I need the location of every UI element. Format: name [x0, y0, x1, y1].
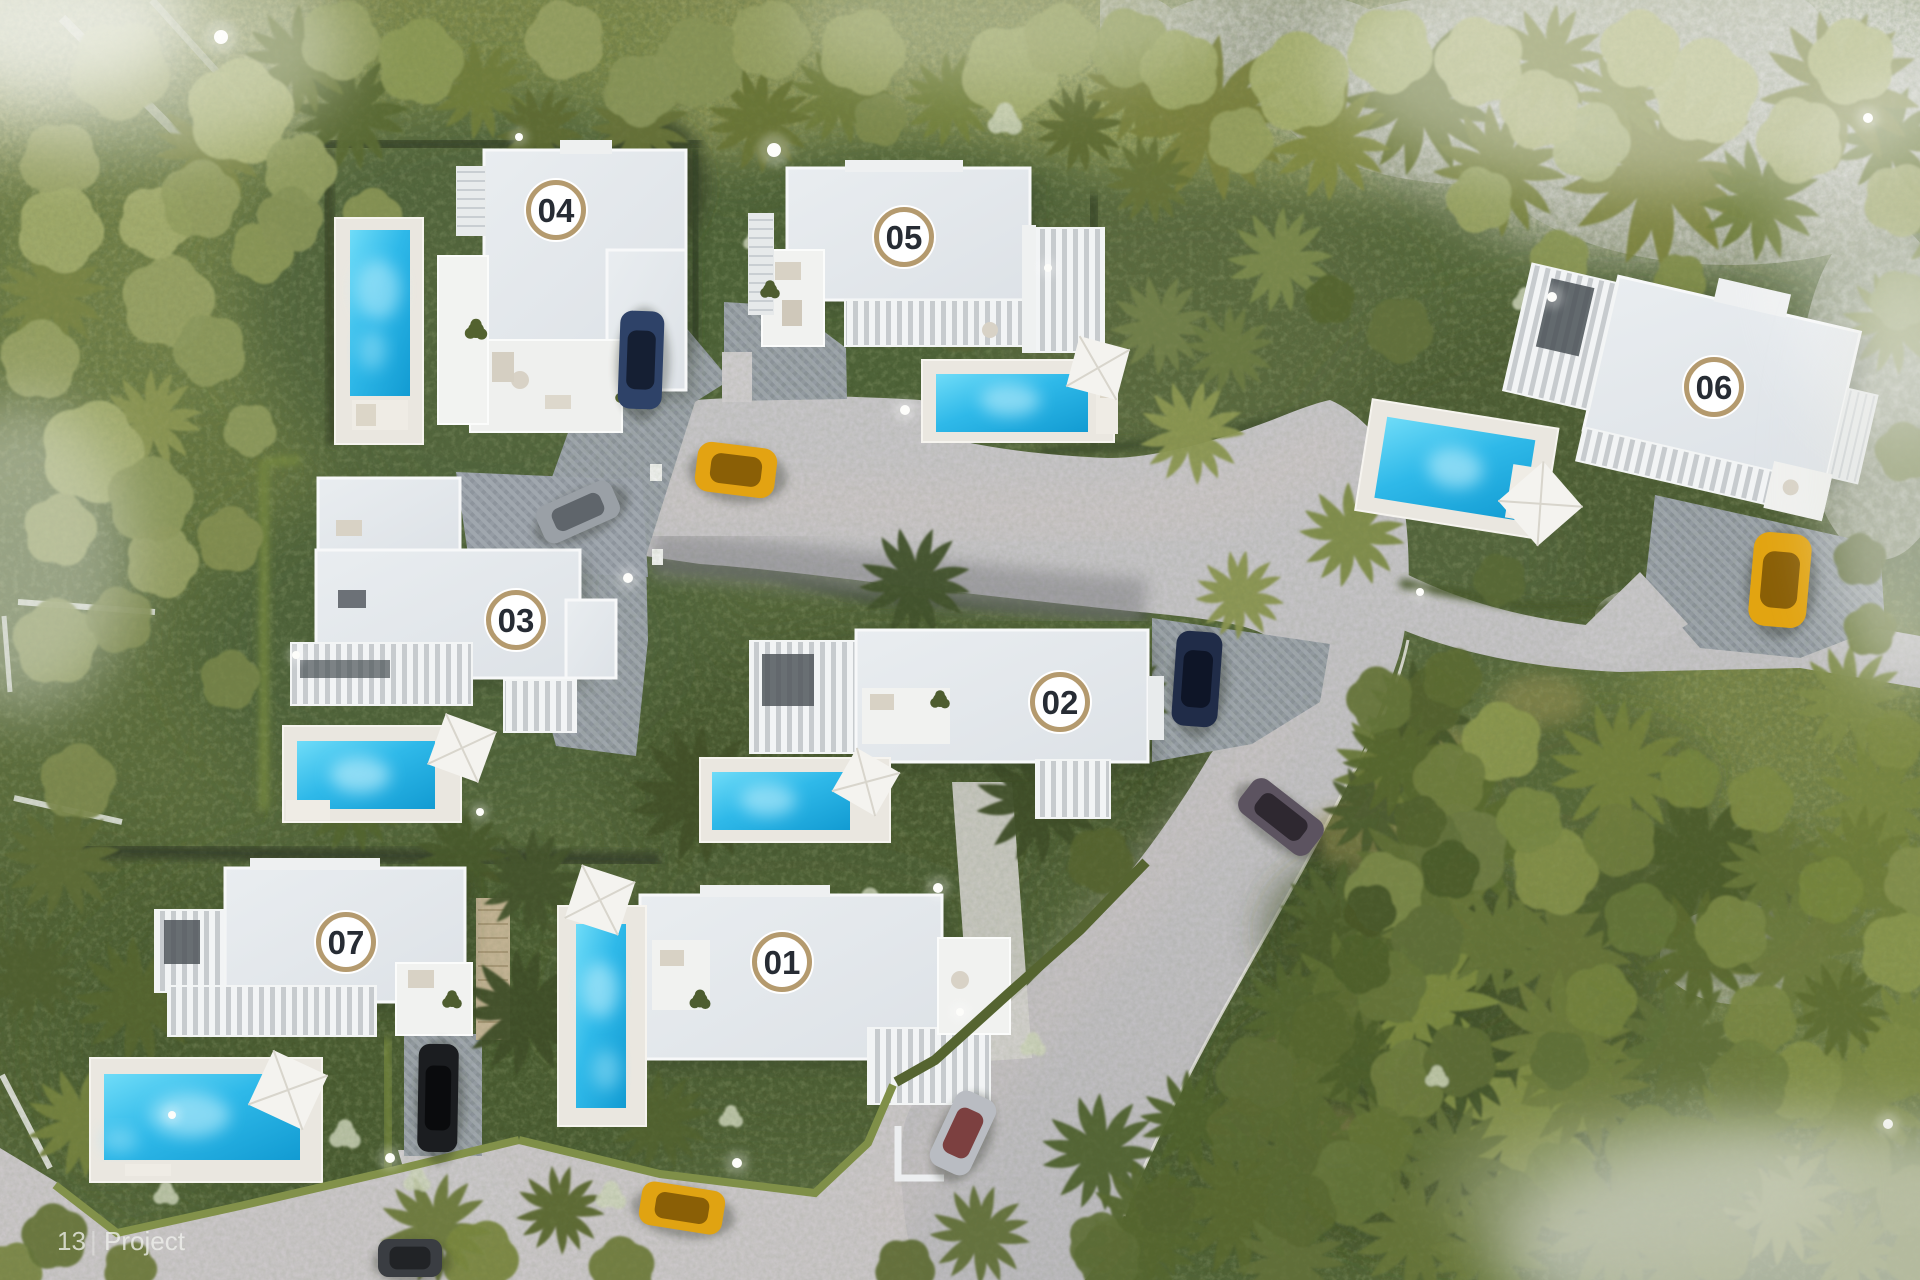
svg-text:13: 13 [57, 1226, 86, 1256]
svg-text:06: 06 [1696, 369, 1733, 406]
svg-text:07: 07 [328, 924, 365, 961]
svg-text:Project: Project [104, 1226, 186, 1256]
svg-text:04: 04 [538, 192, 575, 229]
svg-text:|: | [90, 1226, 97, 1256]
svg-text:05: 05 [886, 219, 923, 256]
svg-text:01: 01 [764, 944, 801, 981]
svg-text:02: 02 [1042, 684, 1079, 721]
svg-text:03: 03 [498, 602, 535, 639]
